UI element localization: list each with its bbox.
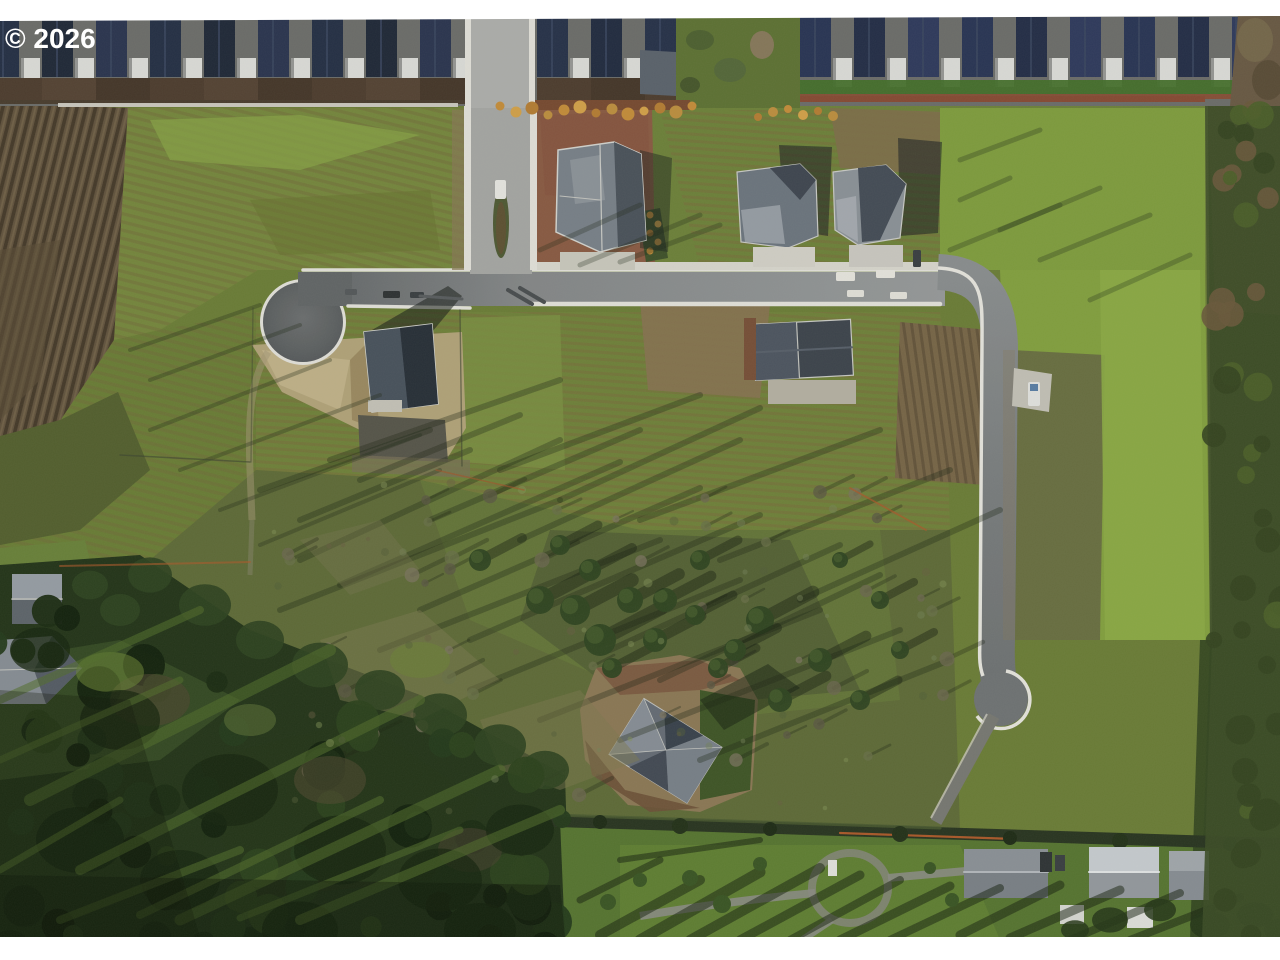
svg-text:© 2026: © 2026 <box>5 23 96 54</box>
